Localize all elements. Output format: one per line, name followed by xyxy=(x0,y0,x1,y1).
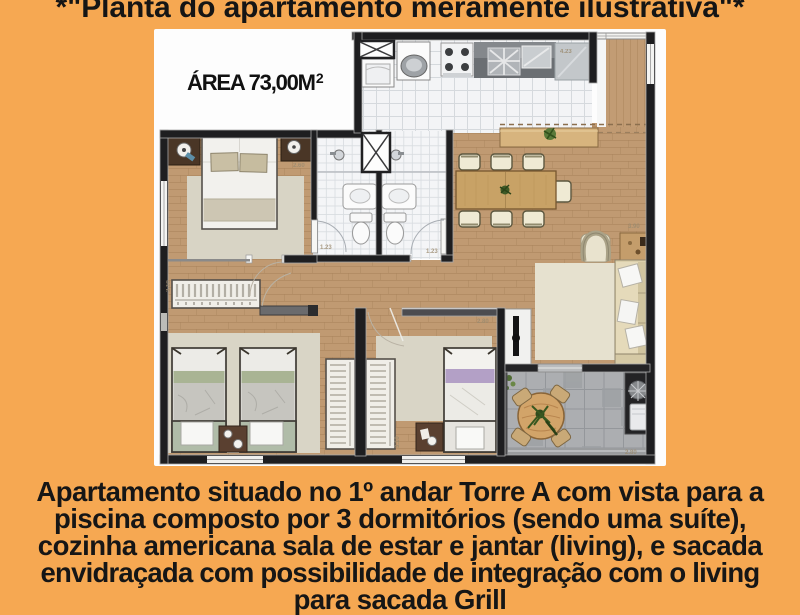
svg-text:2.60: 2.60 xyxy=(293,163,305,169)
svg-text:2.80: 2.80 xyxy=(625,450,637,456)
svg-text:2.80: 2.80 xyxy=(477,319,489,325)
svg-text:3.90: 3.90 xyxy=(628,224,640,230)
svg-text:ÁREA 73,00M2: ÁREA 73,00M2 xyxy=(187,70,324,95)
svg-text:1.23: 1.23 xyxy=(426,249,438,255)
svg-text:3.10: 3.10 xyxy=(395,436,401,448)
svg-text:4.23: 4.23 xyxy=(560,49,572,55)
svg-text:3.10: 3.10 xyxy=(166,280,172,292)
svg-text:1.23: 1.23 xyxy=(320,245,332,251)
